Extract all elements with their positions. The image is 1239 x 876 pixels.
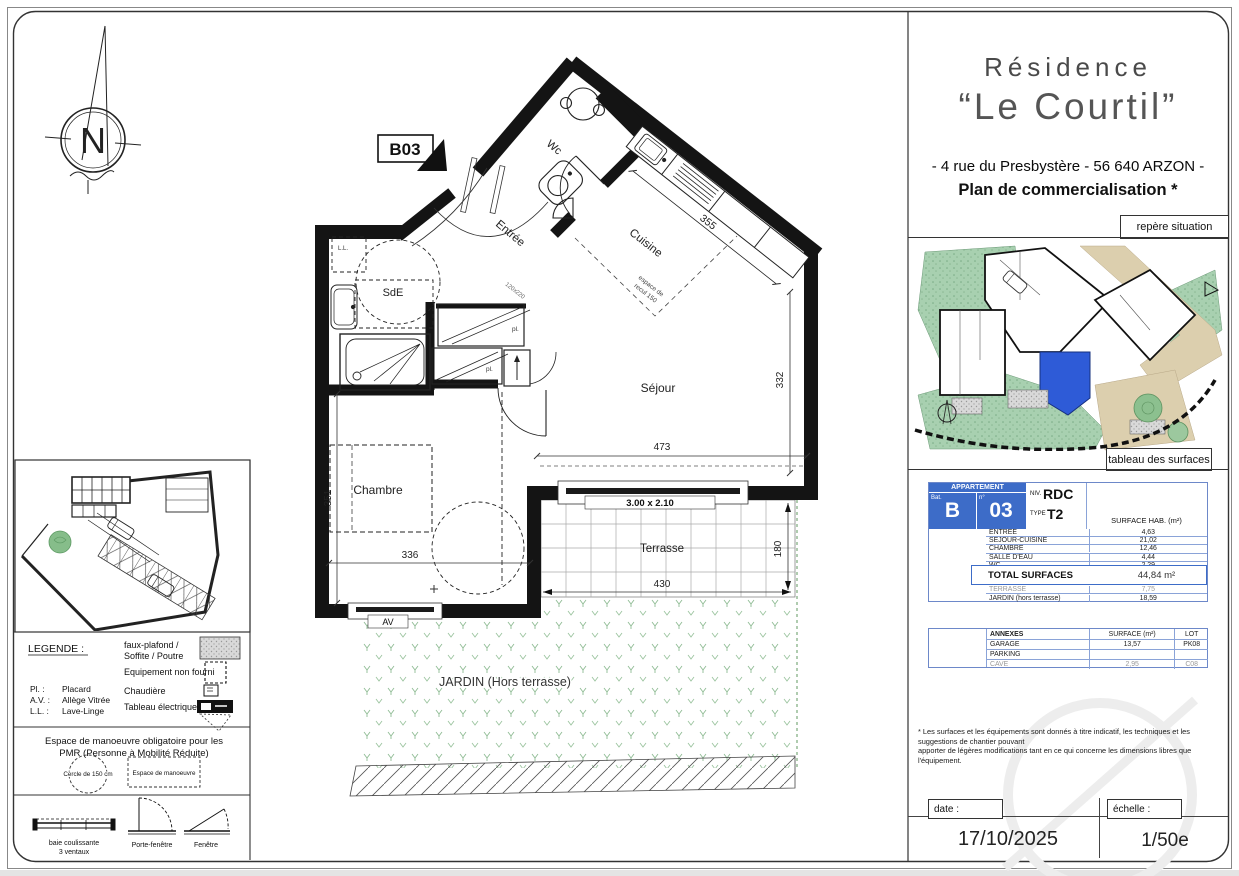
residence-title: Résidence bbox=[908, 52, 1228, 83]
plan-sheet: { "sheet": { "unit_tag": "B03", "compass… bbox=[0, 0, 1239, 876]
right-panel: Résidence “Le Courtil” - 4 rue du Presby… bbox=[0, 0, 1239, 876]
surface-hab-cell: SURFACE HAB. (m²) bbox=[1086, 483, 1207, 529]
total-surfaces-row: TOTAL SURFACES 44,84 m² bbox=[971, 565, 1207, 585]
surface-rows: ENTREE 4,63 SEJOUR-CUISINE 21,02 CHAMBRE… bbox=[986, 529, 1207, 569]
annexes-table: ANNEXES SURFACE (m²) LOT GARAGE 13,57 PK… bbox=[928, 628, 1208, 668]
divider bbox=[908, 237, 1228, 238]
scale-value: 1/50e bbox=[1120, 830, 1210, 852]
total-label: TOTAL SURFACES bbox=[972, 570, 1107, 581]
residence-address: - 4 rue du Presbystère - 56 640 ARZON - bbox=[908, 158, 1228, 175]
outdoor-rows: TERRASSE 7,75 JARDIN (hors terrasse) 18,… bbox=[986, 585, 1207, 602]
surface-table-blue-header: APPARTEMENT Bat. n° B 03 bbox=[929, 483, 1026, 529]
niv-label: NIV. bbox=[1030, 491, 1041, 497]
table-row: ENTREE 4,63 bbox=[986, 529, 1207, 537]
scale-label-box: échelle : bbox=[1107, 799, 1182, 819]
residence-name: “Le Courtil” bbox=[908, 86, 1228, 128]
tableau-surfaces-box: tableau des surfaces bbox=[1106, 448, 1212, 471]
divider bbox=[908, 469, 1228, 470]
table-row: CHAMBRE 12,46 bbox=[986, 545, 1207, 553]
niv-type-cell: NIV. RDC TYPE T2 bbox=[1026, 483, 1087, 529]
date-value: 17/10/2025 bbox=[928, 828, 1088, 851]
date-label-box: date : bbox=[928, 799, 1003, 819]
table-row: TERRASSE 7,75 bbox=[986, 585, 1207, 594]
type-value: T2 bbox=[1047, 506, 1063, 522]
table-row: GARAGE 13,57 PK08 bbox=[987, 640, 1208, 650]
annexes-grid: ANNEXES SURFACE (m²) LOT GARAGE 13,57 PK… bbox=[986, 629, 1208, 667]
plan-type: Plan de commercialisation * bbox=[908, 181, 1228, 200]
table-row: CAVE 2,95 C08 bbox=[987, 660, 1208, 669]
niv-value: RDC bbox=[1043, 486, 1073, 502]
footnote: * Les surfaces et les équipements sont d… bbox=[918, 727, 1220, 765]
table-row: SALLE D'EAU 4,44 bbox=[986, 554, 1207, 562]
total-value: 44,84 m² bbox=[1107, 570, 1206, 581]
surface-table: APPARTEMENT Bat. n° B 03 NIV. RDC TYPE T… bbox=[928, 482, 1208, 602]
footnote-line2: apporter de légères modifications tant e… bbox=[918, 746, 1220, 765]
footnote-line1: * Les surfaces et les équipements sont d… bbox=[918, 727, 1220, 746]
divider bbox=[1099, 798, 1100, 858]
num-value: 03 bbox=[976, 499, 1026, 523]
bat-value: B bbox=[929, 499, 976, 523]
appartement-header: APPARTEMENT bbox=[929, 484, 1026, 493]
type-label: TYPE bbox=[1030, 511, 1046, 517]
surface-hab-header: SURFACE HAB. (m²) bbox=[1086, 516, 1207, 525]
annexes-header-row: ANNEXES SURFACE (m²) LOT bbox=[987, 629, 1208, 640]
repere-situation-box: repère situation bbox=[1120, 215, 1229, 239]
table-row: JARDIN (hors terrasse) 18,59 bbox=[986, 594, 1207, 602]
table-row: SEJOUR-CUISINE 21,02 bbox=[986, 537, 1207, 545]
table-row: PARKING bbox=[987, 650, 1208, 660]
